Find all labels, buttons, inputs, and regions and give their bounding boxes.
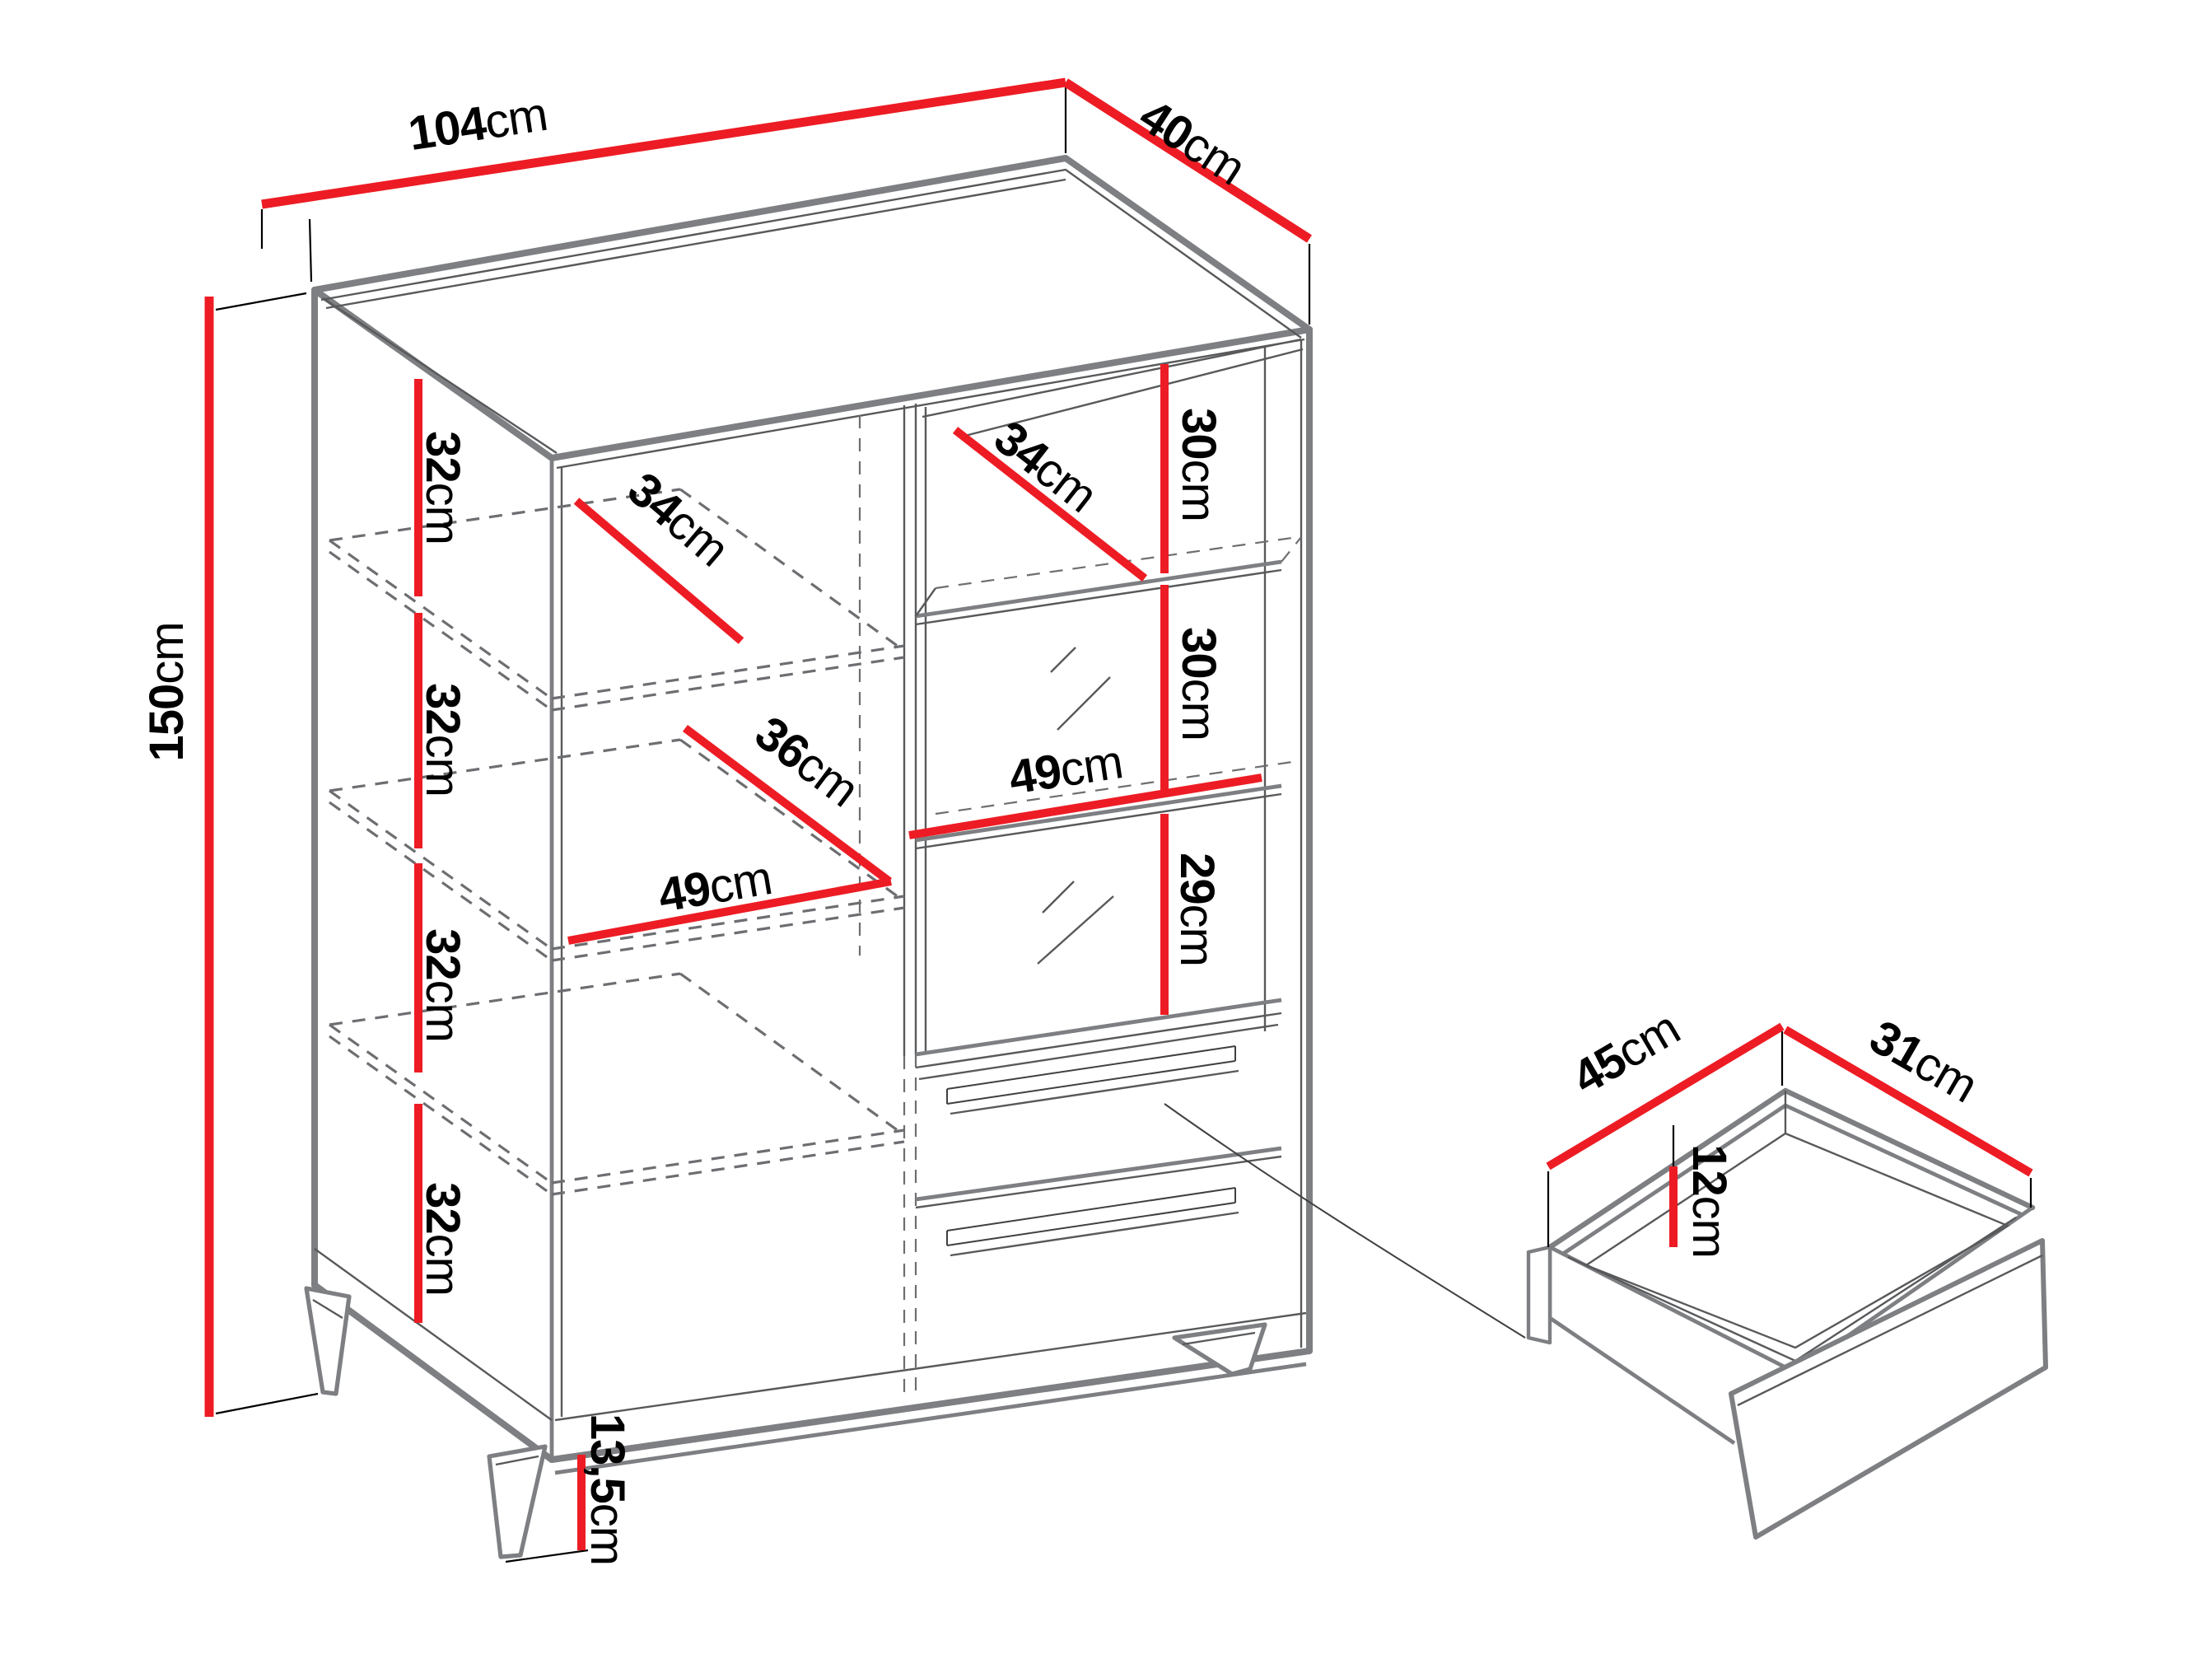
drawer-gap-line xyxy=(916,1148,1281,1199)
label-shelf-gap-1: 32cm xyxy=(417,431,470,544)
main-cabinet xyxy=(306,158,1309,1557)
leg-back-left xyxy=(306,1288,349,1394)
glass-glare-lower xyxy=(1038,881,1113,964)
label-right-inner-width: 49cm xyxy=(1006,735,1126,805)
label-top-depth: 40cm xyxy=(1130,88,1254,195)
label-right-gap-1: 30cm xyxy=(1173,408,1226,521)
cabinet-legs xyxy=(306,1288,1265,1557)
drawer-leader-line xyxy=(1164,1104,1525,1338)
label-left-inner-width: 49cm xyxy=(655,851,776,923)
diagram-canvas: 104cm 40cm 150cm 32cm 32cm 32cm 32cm 34c… xyxy=(0,0,2212,1659)
label-drawer-height: 12cm xyxy=(1683,1144,1737,1258)
drawer-gap-shadow xyxy=(916,1157,1281,1208)
glass-display-section xyxy=(916,339,1303,1079)
label-top-width: 104cm xyxy=(405,86,551,160)
label-right-gap-3: 29cm xyxy=(1171,853,1225,966)
cabinet-divider xyxy=(860,404,916,1402)
cabinet-drawers xyxy=(916,1046,1281,1255)
label-drawer-width: 31cm xyxy=(1861,1009,1986,1112)
label-leg-height: 13,5cm xyxy=(581,1414,635,1565)
dimension-lines xyxy=(209,82,2031,1550)
label-drawer-depth: 45cm xyxy=(1563,1001,1688,1105)
drawer-front-panel xyxy=(1731,1241,2046,1537)
diagram-stage: 104cm 40cm 150cm 32cm 32cm 32cm 32cm 34c… xyxy=(0,0,2212,1659)
drawer-side-end xyxy=(1528,1247,1550,1343)
extension-lines xyxy=(216,87,2031,1562)
label-height: 150cm xyxy=(140,622,194,761)
label-right-gap-2: 30cm xyxy=(1173,627,1226,741)
cabinet-top-face xyxy=(315,158,1309,468)
label-shelf-gap-4: 32cm xyxy=(417,1182,470,1296)
drawer-detail xyxy=(1528,1091,2046,1537)
label-shelf-gap-3: 32cm xyxy=(417,928,470,1042)
label-shelf-gap-2: 32cm xyxy=(417,683,470,797)
glass-glare-upper xyxy=(1051,647,1110,730)
leg-front-left xyxy=(489,1446,545,1557)
dim-line-top-width xyxy=(262,82,1066,204)
